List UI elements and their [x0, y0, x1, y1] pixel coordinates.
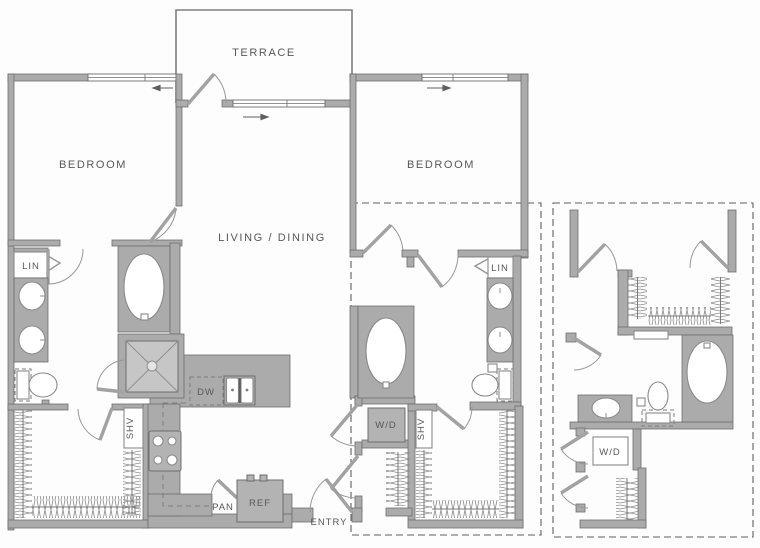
terrace-door-arc	[214, 74, 226, 103]
detail-closet	[561, 476, 638, 520]
linen-left-door	[48, 256, 60, 271]
sink-right-1	[488, 283, 512, 309]
linen-left-label: LIN	[22, 261, 40, 272]
bedroom-right-label: BEDROOM	[407, 159, 475, 171]
living-dining-label: LIVING / DINING	[218, 232, 326, 244]
detail-closet-door-leaf	[561, 476, 588, 493]
detail-door-leaf	[578, 244, 605, 272]
arrow-left-icon	[153, 85, 160, 90]
hall-door-leaf	[363, 225, 391, 253]
detail-door-arc	[605, 244, 617, 271]
bath-left-door-arc	[48, 249, 83, 284]
closet-right-door-leaf	[437, 407, 464, 429]
terrace-door	[188, 74, 226, 104]
laundry-door-leaf	[331, 404, 358, 436]
kitchen-counter-bottom	[148, 494, 212, 516]
toilet-right	[472, 369, 513, 401]
closet-left-door-leaf	[100, 408, 112, 440]
bedroom-right-door-leaf	[418, 255, 442, 287]
walkin-closet-left: SHV	[14, 408, 143, 518]
arrow-right-icon	[443, 85, 450, 90]
washer-dryer-detail-label: W/D	[599, 447, 620, 458]
pantry-label: PAN	[212, 502, 234, 513]
detail-bathtub	[682, 335, 733, 422]
detail-door-leaf	[701, 241, 728, 268]
detail-panel: W/D	[561, 210, 736, 528]
floor-plan-page: TERRACE	[0, 0, 760, 548]
laundry-closet: W/D	[331, 404, 405, 446]
bedroom-left-door-leaf	[150, 208, 176, 242]
detail-laundry: W/D	[561, 432, 628, 465]
floor-plan-drawing: TERRACE	[0, 0, 760, 548]
bedroom-right-door-arc	[442, 254, 458, 287]
detail-bench	[634, 331, 668, 339]
vanity-right	[487, 278, 513, 372]
linen-right-label: LIN	[491, 263, 509, 274]
pantry: PAN	[211, 480, 237, 513]
refrigerator-label: REF	[249, 498, 271, 509]
terrace-label: TERRACE	[232, 47, 296, 59]
bathtub-left	[118, 243, 180, 334]
hall-door-arc	[391, 225, 403, 252]
linen-right-door	[475, 259, 488, 274]
bathtub-right	[358, 306, 414, 398]
walkin-closet-right: SHV	[416, 407, 515, 518]
washer-dryer-main-label: W/D	[375, 420, 396, 431]
detail-laundry-door-leaf	[561, 432, 588, 449]
sink-right-2	[488, 327, 512, 353]
entry-door-leaf	[326, 479, 352, 512]
pantry-door-leaf	[218, 480, 237, 498]
kitchen-sink	[224, 376, 255, 405]
laundry-door-arc	[331, 436, 356, 446]
terrace-door-leaf	[188, 74, 214, 104]
stove	[149, 431, 181, 471]
dishwasher-label: DW	[197, 387, 215, 398]
detail-bath-door-leaf	[574, 338, 601, 355]
closet-left-door-arc	[78, 409, 100, 440]
shelf-left-label: SHV	[125, 417, 136, 440]
detail-toilet	[637, 382, 674, 426]
toilet-left	[15, 369, 57, 404]
bedroom-left-label: BEDROOM	[59, 159, 127, 171]
detail-door-arc	[690, 241, 701, 268]
entry-label: ENTRY	[310, 517, 347, 528]
walls-main-unit	[8, 74, 528, 530]
shower	[97, 334, 184, 398]
refrigerator: REF	[237, 475, 283, 522]
detail-vanity	[578, 395, 632, 422]
entry-door-arc	[310, 479, 326, 512]
detail-bath-door-arc	[574, 355, 601, 370]
bathroom-left: LIN	[14, 208, 184, 404]
coat-closet-door-leaf	[331, 456, 358, 489]
arrow-right-icon	[261, 114, 268, 119]
shelf-right-label: SHV	[416, 418, 427, 441]
vanity-left	[14, 278, 48, 362]
